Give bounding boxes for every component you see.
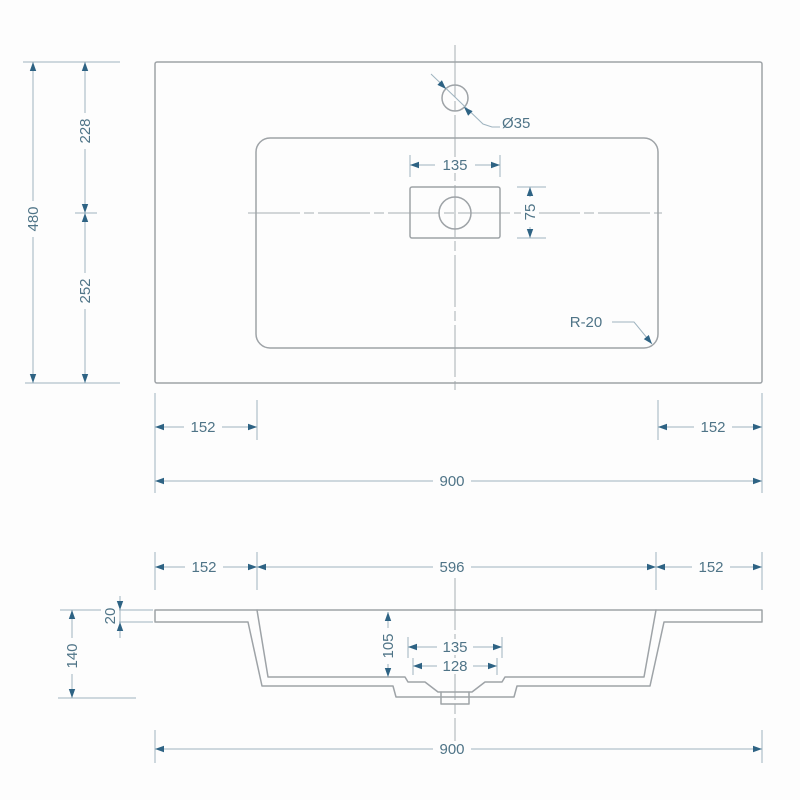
dim-depth-total-label: 480 (25, 206, 42, 231)
dim-plan-offset-left-label: 152 (190, 419, 215, 436)
drawing-page: 480 228 252 135 75 Ø35 R-20 152 152 900 (0, 0, 800, 800)
section-view: 152 596 152 20 140 105 135 128 900 (58, 552, 762, 763)
dim-plan-width-total-label: 900 (439, 473, 464, 490)
dim-depth-lower-label: 252 (77, 278, 94, 303)
radius-leader-line (612, 322, 652, 344)
section-arrowheads (69, 564, 762, 752)
dim-height-total-label: 140 (64, 643, 81, 668)
dim-faucet-diameter-label: Ø35 (502, 115, 530, 132)
technical-drawing: 480 228 252 135 75 Ø35 R-20 152 152 900 (0, 0, 800, 800)
dim-corner-radius-label: R-20 (570, 314, 603, 331)
dim-recess-bottom-label: 128 (442, 658, 467, 675)
dim-bowl-depth-label: 105 (380, 633, 397, 658)
dim-drain-height-label: 75 (522, 204, 539, 221)
plan-view: 480 228 252 135 75 Ø35 R-20 152 152 900 (23, 45, 762, 493)
dim-section-offset-right-label: 152 (698, 559, 723, 576)
dim-plan-offset-right-label: 152 (700, 419, 725, 436)
dim-rim-thickness-label: 20 (102, 608, 119, 625)
dim-opening-width-label: 596 (439, 559, 464, 576)
plan-dimension-lines (23, 62, 762, 493)
dim-drain-width-label: 135 (442, 157, 467, 174)
dim-depth-upper-label: 228 (77, 118, 94, 143)
plan-arrowheads (30, 62, 762, 484)
plan-label-masks (24, 113, 732, 489)
dim-recess-top-label: 135 (442, 639, 467, 656)
dim-section-width-total-label: 900 (439, 741, 464, 758)
dim-section-offset-left-label: 152 (191, 559, 216, 576)
